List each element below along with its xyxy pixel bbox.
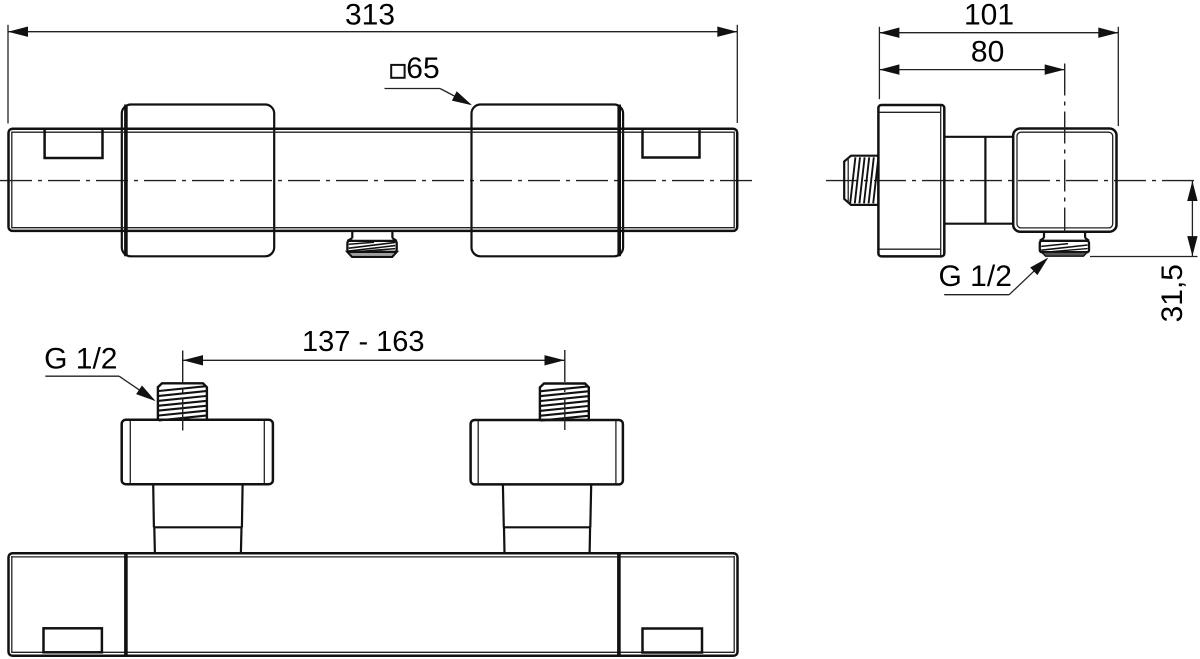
svg-text:313: 313 [345,0,395,32]
svg-text:G 1/2: G 1/2 [44,343,117,376]
svg-text:80: 80 [971,36,1004,69]
svg-text:65: 65 [406,52,439,85]
svg-text:G 1/2: G 1/2 [939,260,1012,293]
svg-text:101: 101 [964,0,1014,31]
svg-text:137 - 163: 137 - 163 [302,326,425,358]
svg-text:31,5: 31,5 [1156,264,1189,322]
